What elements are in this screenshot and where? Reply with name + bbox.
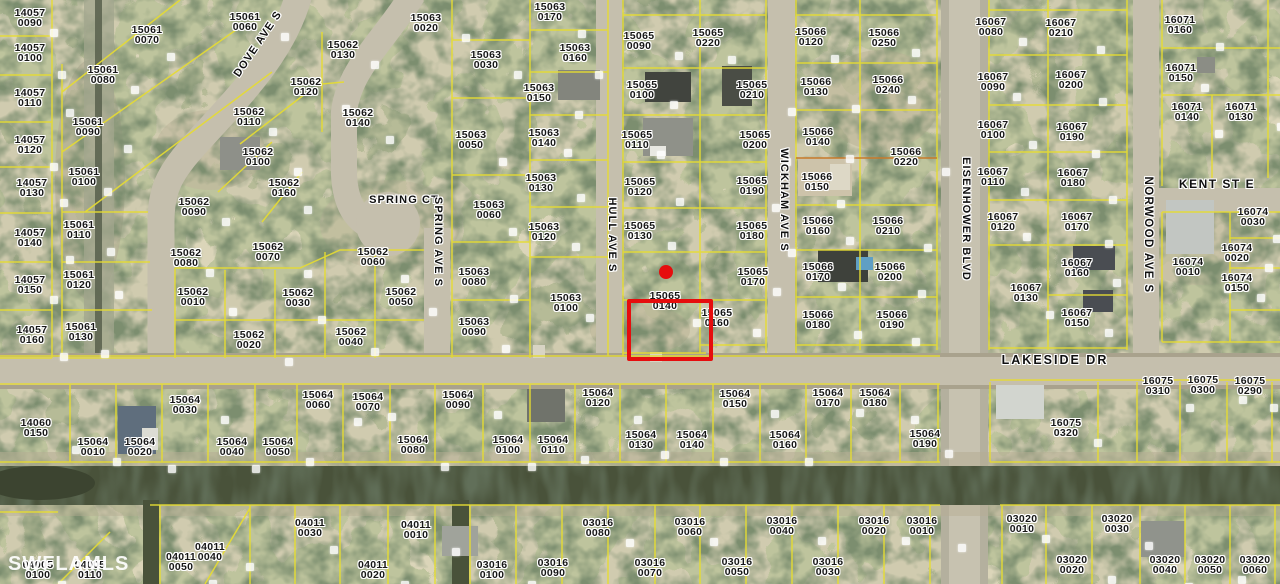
parcel-label: 140570100 xyxy=(15,43,46,63)
lot-marker xyxy=(304,270,312,278)
parcel-label: 150610090 xyxy=(73,117,104,137)
parcel-label: 040110020 xyxy=(358,560,388,580)
parcel-label: 150650170 xyxy=(738,267,769,287)
lot-marker xyxy=(728,56,736,64)
parcel-label: 150650130 xyxy=(625,221,656,241)
lot-marker xyxy=(1238,576,1246,584)
parcel-label: 150650110 xyxy=(622,130,653,150)
parcel-label: 150640020 xyxy=(125,437,156,457)
lot-marker xyxy=(1097,46,1105,54)
lot-marker xyxy=(281,33,289,41)
parcel-label: 160670180 xyxy=(1058,168,1089,188)
highlight-rectangle xyxy=(627,299,713,361)
parcel-label: 150640090 xyxy=(443,390,474,410)
parcel-label: 160670200 xyxy=(1056,70,1087,90)
parcel-label: 160740150 xyxy=(1222,273,1253,293)
lot-marker xyxy=(1270,404,1278,412)
parcel-label: 150640170 xyxy=(813,388,844,408)
lot-marker xyxy=(902,537,910,545)
parcel-label: 160670110 xyxy=(978,167,1009,187)
parcel-label: 150660140 xyxy=(803,127,834,147)
lot-marker xyxy=(510,295,518,303)
parcel-label: 030160070 xyxy=(635,558,666,578)
lot-marker xyxy=(838,283,846,291)
lot-marker xyxy=(330,546,338,554)
lot-marker xyxy=(1105,240,1113,248)
parcel-label: 150660200 xyxy=(875,262,906,282)
lot-marker xyxy=(1265,264,1273,272)
parcel-label: 040110030 xyxy=(295,518,325,538)
parcel-label: 140570090 xyxy=(15,8,46,28)
parcel-label: 150660150 xyxy=(802,172,833,192)
street-label: HULL AVE S xyxy=(606,198,618,273)
lot-marker xyxy=(595,71,603,79)
lot-marker xyxy=(1186,404,1194,412)
lot-marker xyxy=(115,291,123,299)
parcel-label: 150620120 xyxy=(291,77,322,97)
parcel-label: 150630100 xyxy=(551,293,582,313)
parcel-label: 150640140 xyxy=(677,430,708,450)
parcel-label: 160710160 xyxy=(1165,15,1196,35)
parcel-label: 150640050 xyxy=(263,437,294,457)
lot-marker xyxy=(104,188,112,196)
parcel-label: 150630150 xyxy=(524,83,555,103)
lot-marker xyxy=(1019,38,1027,46)
lot-marker xyxy=(771,410,779,418)
watermark: SWFLAMLS xyxy=(8,553,129,576)
parcel-label: 160670100 xyxy=(978,120,1009,140)
lot-marker xyxy=(304,206,312,214)
lot-marker xyxy=(50,296,58,304)
lot-marker xyxy=(1145,542,1153,550)
lot-marker xyxy=(846,155,854,163)
lot-marker xyxy=(846,237,854,245)
parcel-label: 150640180 xyxy=(860,388,891,408)
parcel-label: 150630140 xyxy=(529,128,560,148)
parcel-label: 030200060 xyxy=(1240,555,1271,575)
parcel-label: 150640120 xyxy=(583,388,614,408)
lot-marker xyxy=(452,548,460,556)
lot-marker xyxy=(578,30,586,38)
parcel-label: 030160010 xyxy=(907,516,938,536)
lot-marker xyxy=(626,539,634,547)
parcel-label: 150630050 xyxy=(456,130,487,150)
lot-marker xyxy=(371,61,379,69)
parcel-label: 160740010 xyxy=(1173,257,1204,277)
parcel-label: 150630160 xyxy=(560,43,591,63)
parcel-label: 030160080 xyxy=(583,518,614,538)
lot-marker xyxy=(1113,279,1121,287)
parcel-label: 150640110 xyxy=(538,435,569,455)
lot-marker xyxy=(854,331,862,339)
lot-marker xyxy=(788,108,796,116)
parcel-label: 150660180 xyxy=(803,310,834,330)
parcel-label: 150660210 xyxy=(873,216,904,236)
parcel-label: 150640040 xyxy=(217,437,248,457)
lot-marker xyxy=(856,409,864,417)
lot-marker xyxy=(675,52,683,60)
lot-marker xyxy=(818,537,826,545)
parcel-label: 030160040 xyxy=(767,516,798,536)
parcel-label: 150650120 xyxy=(625,177,656,197)
parcel-label: 040110010 xyxy=(401,520,431,540)
lot-marker xyxy=(371,348,379,356)
parcel-label: 040110040 xyxy=(195,542,225,562)
street-label: SPRING CT xyxy=(369,194,439,206)
parcel-label: 030160060 xyxy=(675,517,706,537)
lot-marker xyxy=(124,145,132,153)
parcel-label: 160750290 xyxy=(1235,376,1266,396)
parcel-label: 150650090 xyxy=(624,31,655,51)
lot-marker xyxy=(222,218,230,226)
lot-marker xyxy=(209,580,217,584)
lot-marker xyxy=(773,288,781,296)
parcel-label: 150610110 xyxy=(64,220,95,240)
parcel-label: 160670210 xyxy=(1046,18,1077,38)
street-label: NORWOOD AVE S xyxy=(1142,176,1154,293)
parcel-label: 150660190 xyxy=(877,310,908,330)
parcel-label: 150660120 xyxy=(796,27,827,47)
lot-marker xyxy=(269,128,277,136)
lot-marker xyxy=(657,151,665,159)
parcel-label: 150620030 xyxy=(283,288,314,308)
lot-marker xyxy=(945,450,953,458)
lot-marker xyxy=(168,465,176,473)
parcel-label: 030200040 xyxy=(1150,555,1181,575)
lot-marker xyxy=(131,86,139,94)
parcel-label: 150620060 xyxy=(358,247,389,267)
lot-marker xyxy=(285,358,293,366)
lot-marker xyxy=(1029,141,1037,149)
lot-marker xyxy=(101,350,109,358)
parcel-label: 150640150 xyxy=(720,389,751,409)
lot-marker xyxy=(246,563,254,571)
parcel-label: 150630090 xyxy=(459,317,490,337)
parcel-label: 160710150 xyxy=(1166,63,1197,83)
lot-marker xyxy=(575,111,583,119)
parcel-label: 030200050 xyxy=(1195,555,1226,575)
lot-marker xyxy=(918,290,926,298)
lot-marker xyxy=(912,338,920,346)
parcel-label: 150620090 xyxy=(179,197,210,217)
lot-marker xyxy=(1108,576,1116,584)
lot-marker xyxy=(354,418,362,426)
parcel-label: 150630120 xyxy=(529,222,560,242)
lot-marker xyxy=(306,458,314,466)
parcel-label: 150640030 xyxy=(170,395,201,415)
street-label: WICKHAM AVE S xyxy=(778,148,790,252)
parcel-label: 040110050 xyxy=(166,552,196,572)
parcel-label: 150610120 xyxy=(64,270,95,290)
parcel-label: 150640160 xyxy=(770,430,801,450)
street-label: LAKESIDE DR xyxy=(1002,353,1109,367)
parcel-label: 150630170 xyxy=(535,2,566,22)
lot-marker xyxy=(1013,93,1021,101)
lot-marker xyxy=(528,463,536,471)
parcel-label: 140570130 xyxy=(17,178,48,198)
lot-marker xyxy=(911,416,919,424)
lot-marker xyxy=(318,316,326,324)
map-labels: 1405700901405701001405701101405701201405… xyxy=(0,0,1280,584)
lot-marker xyxy=(388,413,396,421)
lot-marker xyxy=(634,416,642,424)
lot-marker xyxy=(50,29,58,37)
lot-marker xyxy=(1046,311,1054,319)
lot-marker xyxy=(386,136,394,144)
parcel-label: 030160100 xyxy=(477,560,508,580)
parcel-label: 150610100 xyxy=(69,167,100,187)
parcel-label: 150640190 xyxy=(910,429,941,449)
lot-marker xyxy=(942,168,950,176)
lot-marker xyxy=(58,71,66,79)
lot-marker xyxy=(924,244,932,252)
lot-marker xyxy=(514,71,522,79)
parcel-label: 150660130 xyxy=(801,77,832,97)
parcel-label: 160740020 xyxy=(1222,243,1253,263)
parcel-label: 160670170 xyxy=(1062,212,1093,232)
parcel-label: 150650200 xyxy=(740,130,771,150)
parcel-label: 150640100 xyxy=(493,435,524,455)
lot-marker xyxy=(206,269,214,277)
parcel-label: 160750320 xyxy=(1051,418,1082,438)
lot-marker xyxy=(1257,294,1265,302)
lot-marker xyxy=(1216,43,1224,51)
lot-marker xyxy=(1273,235,1280,243)
parcel-label: 150640130 xyxy=(626,430,657,450)
parcel-label: 160670130 xyxy=(1011,283,1042,303)
parcel-label: 140600150 xyxy=(21,418,52,438)
parcel-label: 150630080 xyxy=(459,267,490,287)
lot-marker xyxy=(1239,396,1247,404)
parcel-label: 030200010 xyxy=(1007,514,1038,534)
parcel-label: 140570110 xyxy=(15,88,46,108)
parcel-label: 160670150 xyxy=(1062,308,1093,328)
parcel-label: 150660170 xyxy=(803,262,834,282)
lot-marker xyxy=(720,458,728,466)
parcel-label: 150630130 xyxy=(526,173,557,193)
lot-marker xyxy=(831,55,839,63)
lot-marker xyxy=(912,49,920,57)
lot-marker xyxy=(668,242,676,250)
parcel-label: 160710140 xyxy=(1172,102,1203,122)
lot-marker xyxy=(852,105,860,113)
lot-marker xyxy=(908,96,916,104)
parcel-label: 030160020 xyxy=(859,516,890,536)
parcel-label: 150650100 xyxy=(627,80,658,100)
parcel-label: 150620110 xyxy=(234,107,265,127)
parcel-label: 140570120 xyxy=(15,135,46,155)
parcel-label: 030160050 xyxy=(722,557,753,577)
parcel-label: 140570160 xyxy=(17,325,48,345)
lot-marker xyxy=(502,345,510,353)
lot-marker xyxy=(805,458,813,466)
parcel-label: 150640080 xyxy=(398,435,429,455)
parcel-label: 150610060 xyxy=(230,12,261,32)
lot-marker xyxy=(958,544,966,552)
parcel-label: 150620070 xyxy=(253,242,284,262)
parcel-label: 150660160 xyxy=(803,216,834,236)
parcel-label: 150660220 xyxy=(891,147,922,167)
lot-marker xyxy=(753,329,761,337)
parcel-label: 150620020 xyxy=(234,330,265,350)
lot-marker xyxy=(252,465,260,473)
lot-marker xyxy=(837,200,845,208)
lot-marker xyxy=(221,416,229,424)
lot-marker xyxy=(572,243,580,251)
parcel-label: 160740030 xyxy=(1238,207,1269,227)
parcel-label: 150630030 xyxy=(471,50,502,70)
parcel-label: 140570150 xyxy=(15,275,46,295)
lot-marker xyxy=(710,538,718,546)
lot-marker xyxy=(1109,196,1117,204)
lot-marker xyxy=(577,194,585,202)
parcel-label: 150620040 xyxy=(336,327,367,347)
parcel-label: 150620050 xyxy=(386,287,417,307)
lot-marker xyxy=(60,199,68,207)
parcel-label: 160670080 xyxy=(976,17,1007,37)
lot-marker xyxy=(499,158,507,166)
parcel-label: 160750300 xyxy=(1188,375,1219,395)
parcel-label: 150650220 xyxy=(693,28,724,48)
parcel-label: 150610130 xyxy=(66,322,97,342)
lot-marker xyxy=(462,34,470,42)
parcel-label: 160670120 xyxy=(988,212,1019,232)
lot-marker xyxy=(229,308,237,316)
lot-marker xyxy=(1023,233,1031,241)
lot-marker xyxy=(1021,188,1029,196)
lot-marker xyxy=(50,163,58,171)
parcel-label: 150620130 xyxy=(328,40,359,60)
lot-marker xyxy=(586,314,594,322)
lot-marker xyxy=(1092,150,1100,158)
lot-marker xyxy=(60,353,68,361)
street-label: KENT ST E xyxy=(1179,177,1255,191)
lot-marker xyxy=(494,411,502,419)
parcel-label: 030200030 xyxy=(1102,514,1133,534)
parcel-label: 150650190 xyxy=(737,176,768,196)
lot-marker xyxy=(1105,329,1113,337)
parcel-label: 150640010 xyxy=(78,437,109,457)
lot-marker xyxy=(1099,98,1107,106)
lot-marker xyxy=(670,101,678,109)
parcel-label: 030200020 xyxy=(1057,555,1088,575)
lot-marker xyxy=(564,149,572,157)
lot-marker xyxy=(1215,130,1223,138)
parcel-label: 030160030 xyxy=(813,557,844,577)
parcel-label: 150620080 xyxy=(171,248,202,268)
parcel-label: 150660250 xyxy=(869,28,900,48)
parcel-label: 030160090 xyxy=(538,558,569,578)
street-label: EISENHOWER BLVD xyxy=(960,157,972,281)
parcel-label: 150620010 xyxy=(178,287,209,307)
lot-marker xyxy=(113,458,121,466)
lot-marker xyxy=(1042,535,1050,543)
parcel-label: 160750310 xyxy=(1143,376,1174,396)
lot-marker xyxy=(661,451,669,459)
lot-marker xyxy=(441,463,449,471)
lot-marker xyxy=(581,456,589,464)
parcel-label: 150610070 xyxy=(132,25,163,45)
highlight-dot xyxy=(659,265,673,279)
aerial-parcel-map: 1405700901405701001405701101405701201405… xyxy=(0,0,1280,584)
parcel-label: 150650210 xyxy=(737,80,768,100)
parcel-label: 160670090 xyxy=(978,72,1009,92)
lot-marker xyxy=(1094,439,1102,447)
lot-marker xyxy=(1201,84,1209,92)
parcel-label: 150620160 xyxy=(269,178,300,198)
parcel-label: 150630020 xyxy=(411,13,442,33)
lot-marker xyxy=(401,275,409,283)
parcel-label: 150660240 xyxy=(873,75,904,95)
parcel-label: 150650180 xyxy=(737,221,768,241)
parcel-label: 160670190 xyxy=(1057,122,1088,142)
parcel-label: 150630060 xyxy=(474,200,505,220)
lot-marker xyxy=(66,256,74,264)
parcel-label: 150640070 xyxy=(353,392,384,412)
parcel-label: 160710130 xyxy=(1226,102,1257,122)
street-label: SPRING AVE S xyxy=(432,197,444,287)
parcel-label: 140570140 xyxy=(15,228,46,248)
lot-marker xyxy=(509,228,517,236)
lot-marker xyxy=(676,198,684,206)
lot-marker xyxy=(429,308,437,316)
parcel-label: 150620140 xyxy=(343,108,374,128)
lot-marker xyxy=(107,248,115,256)
parcel-label: 160670160 xyxy=(1062,258,1093,278)
parcel-label: 150640060 xyxy=(303,390,334,410)
lot-marker xyxy=(167,53,175,61)
lot-marker xyxy=(294,168,302,176)
parcel-label: 150610080 xyxy=(88,65,119,85)
parcel-label: 150620100 xyxy=(243,147,274,167)
